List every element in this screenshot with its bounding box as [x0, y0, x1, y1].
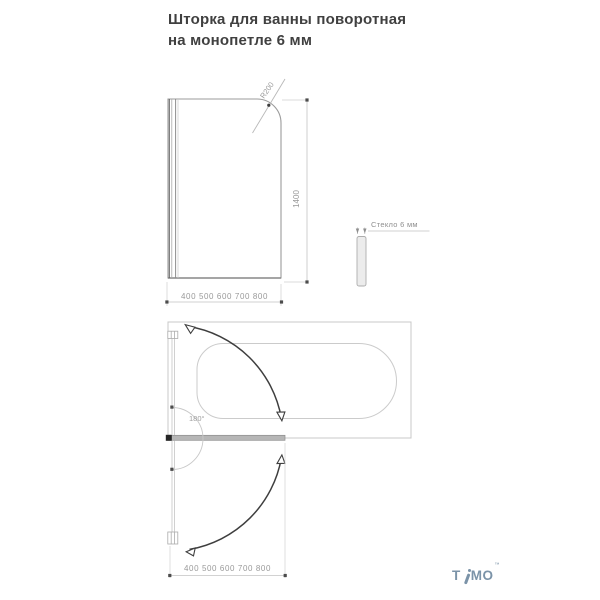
logo-trademark: ™	[495, 562, 501, 568]
timo-logo: T MO ™	[452, 563, 500, 583]
screen-bar-closed	[168, 435, 286, 440]
glass-panel-outline	[168, 99, 281, 278]
side-view	[356, 228, 430, 287]
technical-drawing-page: Шторка для ванны поворотная на монопетле…	[0, 0, 600, 600]
plan-width-label: 400 500 600 700 800	[170, 565, 285, 573]
logo-letters-mo: MO	[471, 568, 494, 583]
arrowhead-up	[277, 455, 285, 464]
title-line-1: Шторка для ванны поворотная	[168, 9, 406, 30]
screen-open-down	[168, 441, 178, 544]
plan-width-dimension	[168, 443, 287, 578]
glass-profile	[357, 237, 366, 287]
glass-thickness-label: Стекло 6 мм	[371, 221, 418, 229]
rotation-angle-label: 180°	[189, 415, 205, 423]
pivot-hinge	[166, 435, 172, 441]
front-width-label: 400 500 600 700 800	[167, 293, 282, 301]
swing-arc-lower	[186, 455, 285, 556]
page-title: Шторка для ванны поворотная на монопетле…	[168, 9, 406, 51]
logo-letter-t: T	[452, 568, 461, 583]
title-line-2: на монопетле 6 мм	[168, 30, 406, 51]
drawing-canvas	[0, 0, 600, 600]
logo-slash-i-icon	[462, 569, 471, 583]
height-label: 1400	[293, 181, 301, 217]
thickness-arrow-left	[356, 229, 359, 234]
plan-view	[166, 322, 411, 578]
front-view	[165, 79, 308, 306]
thickness-arrow-right	[363, 229, 366, 234]
